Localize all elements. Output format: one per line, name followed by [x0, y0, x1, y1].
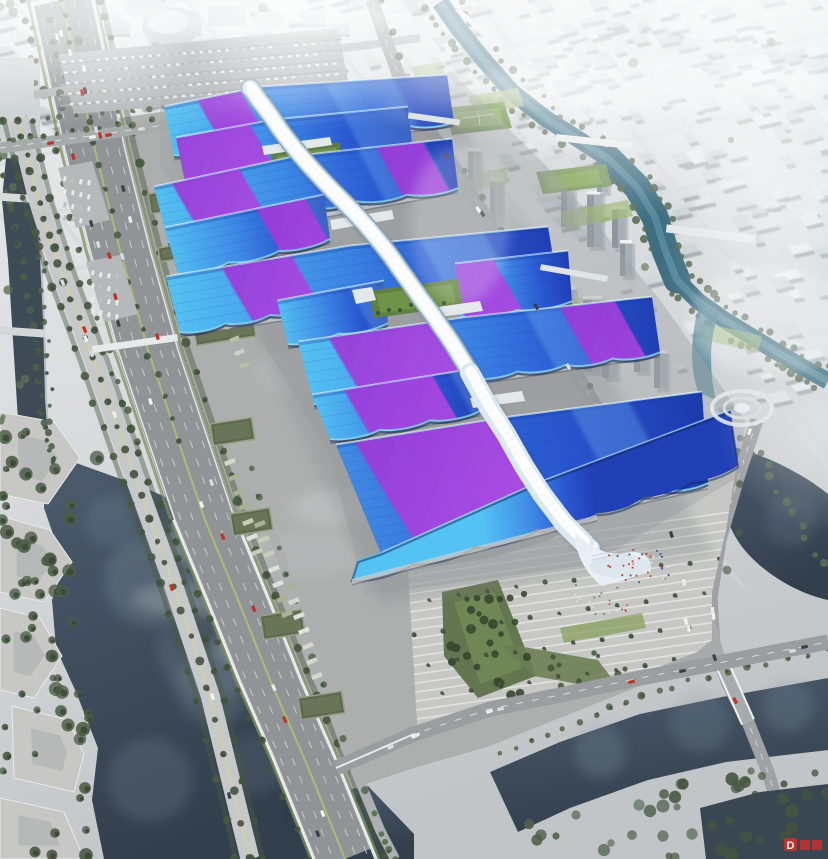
svg-text:D: D — [787, 840, 795, 852]
